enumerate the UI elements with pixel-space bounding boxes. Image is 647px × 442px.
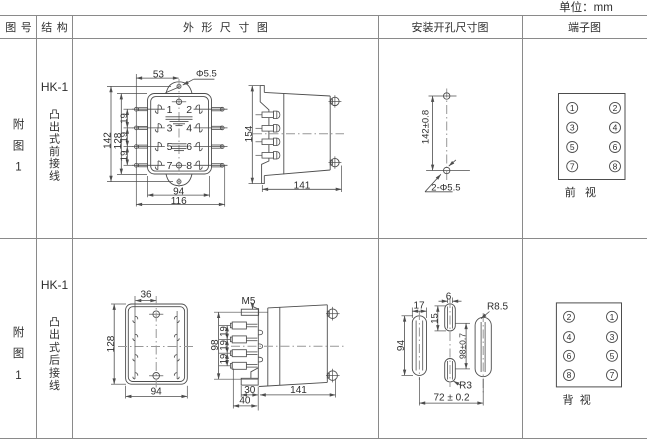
svg-text:式: 式 bbox=[49, 133, 60, 146]
svg-text:前: 前 bbox=[49, 144, 60, 158]
svg-text:7: 7 bbox=[570, 161, 575, 171]
svg-text:出: 出 bbox=[49, 327, 60, 341]
svg-text:2: 2 bbox=[186, 104, 192, 116]
svg-text:6: 6 bbox=[613, 142, 618, 152]
svg-text:1: 1 bbox=[15, 370, 21, 382]
svg-text:94: 94 bbox=[151, 386, 163, 397]
svg-text:154: 154 bbox=[244, 125, 255, 142]
svg-text:4: 4 bbox=[567, 332, 572, 342]
svg-text:单位：mm: 单位：mm bbox=[559, 0, 613, 14]
svg-text:图: 图 bbox=[13, 140, 25, 153]
svg-text:安装开孔尺寸图: 安装开孔尺寸图 bbox=[412, 20, 489, 34]
svg-text:6: 6 bbox=[567, 351, 572, 361]
svg-text:5: 5 bbox=[570, 142, 575, 152]
svg-text:128: 128 bbox=[106, 335, 117, 352]
svg-text:5: 5 bbox=[610, 351, 615, 361]
svg-text:4: 4 bbox=[186, 123, 192, 135]
svg-text:6: 6 bbox=[186, 141, 192, 153]
svg-text:53: 53 bbox=[153, 70, 165, 81]
svg-text:凸: 凸 bbox=[49, 317, 60, 329]
svg-text:19: 19 bbox=[219, 326, 230, 337]
svg-text:3: 3 bbox=[610, 332, 615, 342]
svg-text:1: 1 bbox=[570, 103, 575, 113]
svg-text:8: 8 bbox=[186, 160, 192, 172]
svg-text:R3: R3 bbox=[459, 381, 472, 392]
svg-text:1: 1 bbox=[167, 104, 173, 116]
svg-text:6: 6 bbox=[446, 291, 452, 302]
svg-text:141: 141 bbox=[290, 385, 307, 396]
svg-text:附: 附 bbox=[13, 325, 25, 339]
svg-text:Φ5.5: Φ5.5 bbox=[196, 69, 217, 80]
svg-text:附: 附 bbox=[13, 117, 25, 131]
svg-text:线: 线 bbox=[49, 169, 60, 183]
svg-text:7: 7 bbox=[610, 370, 615, 380]
svg-text:结构: 结构 bbox=[41, 20, 72, 34]
svg-text:94: 94 bbox=[396, 340, 407, 352]
svg-text:1: 1 bbox=[15, 162, 21, 174]
svg-text:40: 40 bbox=[239, 396, 251, 407]
svg-text:8: 8 bbox=[613, 161, 618, 171]
svg-text:2: 2 bbox=[613, 103, 618, 113]
svg-text:7: 7 bbox=[167, 160, 173, 172]
svg-text:后: 后 bbox=[49, 354, 60, 367]
svg-text:3: 3 bbox=[167, 123, 173, 135]
svg-text:接: 接 bbox=[49, 157, 60, 170]
svg-text:式: 式 bbox=[49, 341, 60, 354]
svg-text:8: 8 bbox=[567, 370, 572, 380]
svg-text:116: 116 bbox=[171, 196, 187, 207]
svg-text:凸: 凸 bbox=[49, 109, 60, 121]
svg-text:19: 19 bbox=[119, 151, 130, 162]
svg-text:3: 3 bbox=[570, 123, 575, 133]
svg-text:17: 17 bbox=[413, 300, 425, 311]
svg-text:外形尺寸图: 外形尺寸图 bbox=[183, 20, 276, 34]
svg-text:141: 141 bbox=[294, 181, 311, 192]
svg-text:5: 5 bbox=[167, 141, 173, 153]
svg-text:背: 背 bbox=[563, 392, 574, 406]
svg-text:19: 19 bbox=[219, 354, 230, 365]
svg-text:1: 1 bbox=[610, 312, 615, 322]
svg-text:视: 视 bbox=[585, 185, 596, 199]
svg-text:98±0.7: 98±0.7 bbox=[457, 333, 467, 359]
svg-text:M5: M5 bbox=[242, 296, 256, 307]
svg-text:15: 15 bbox=[429, 313, 440, 324]
svg-text:图: 图 bbox=[13, 347, 25, 360]
svg-text:142±0.8: 142±0.8 bbox=[420, 110, 431, 144]
svg-text:30: 30 bbox=[244, 385, 256, 396]
svg-text:2: 2 bbox=[567, 312, 572, 322]
svg-text:HK-1: HK-1 bbox=[41, 80, 69, 94]
svg-text:HK-1: HK-1 bbox=[41, 278, 69, 292]
svg-text:端子图: 端子图 bbox=[568, 21, 601, 34]
svg-text:4: 4 bbox=[613, 123, 618, 133]
svg-text:142: 142 bbox=[103, 132, 114, 149]
svg-text:36: 36 bbox=[140, 290, 152, 301]
svg-text:72 ± 0.2: 72 ± 0.2 bbox=[433, 393, 470, 404]
svg-text:19: 19 bbox=[219, 340, 230, 351]
svg-text:线: 线 bbox=[49, 378, 60, 392]
svg-text:接: 接 bbox=[49, 366, 60, 379]
svg-text:19: 19 bbox=[119, 132, 130, 143]
svg-text:前: 前 bbox=[565, 185, 576, 199]
svg-text:视: 视 bbox=[580, 392, 591, 406]
svg-text:图号: 图号 bbox=[5, 21, 36, 34]
svg-text:出: 出 bbox=[49, 119, 60, 133]
svg-text:R8.5: R8.5 bbox=[487, 302, 509, 313]
svg-text:19: 19 bbox=[119, 113, 130, 124]
